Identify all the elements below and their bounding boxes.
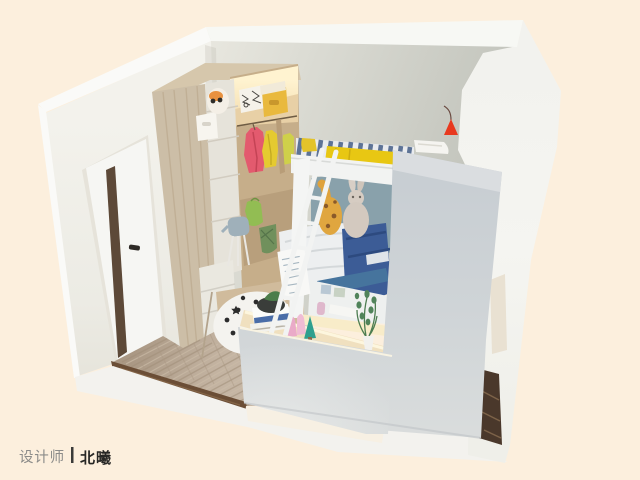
svg-text:设计师: 设计师	[19, 449, 65, 466]
svg-text:北曦: 北曦	[80, 449, 112, 467]
